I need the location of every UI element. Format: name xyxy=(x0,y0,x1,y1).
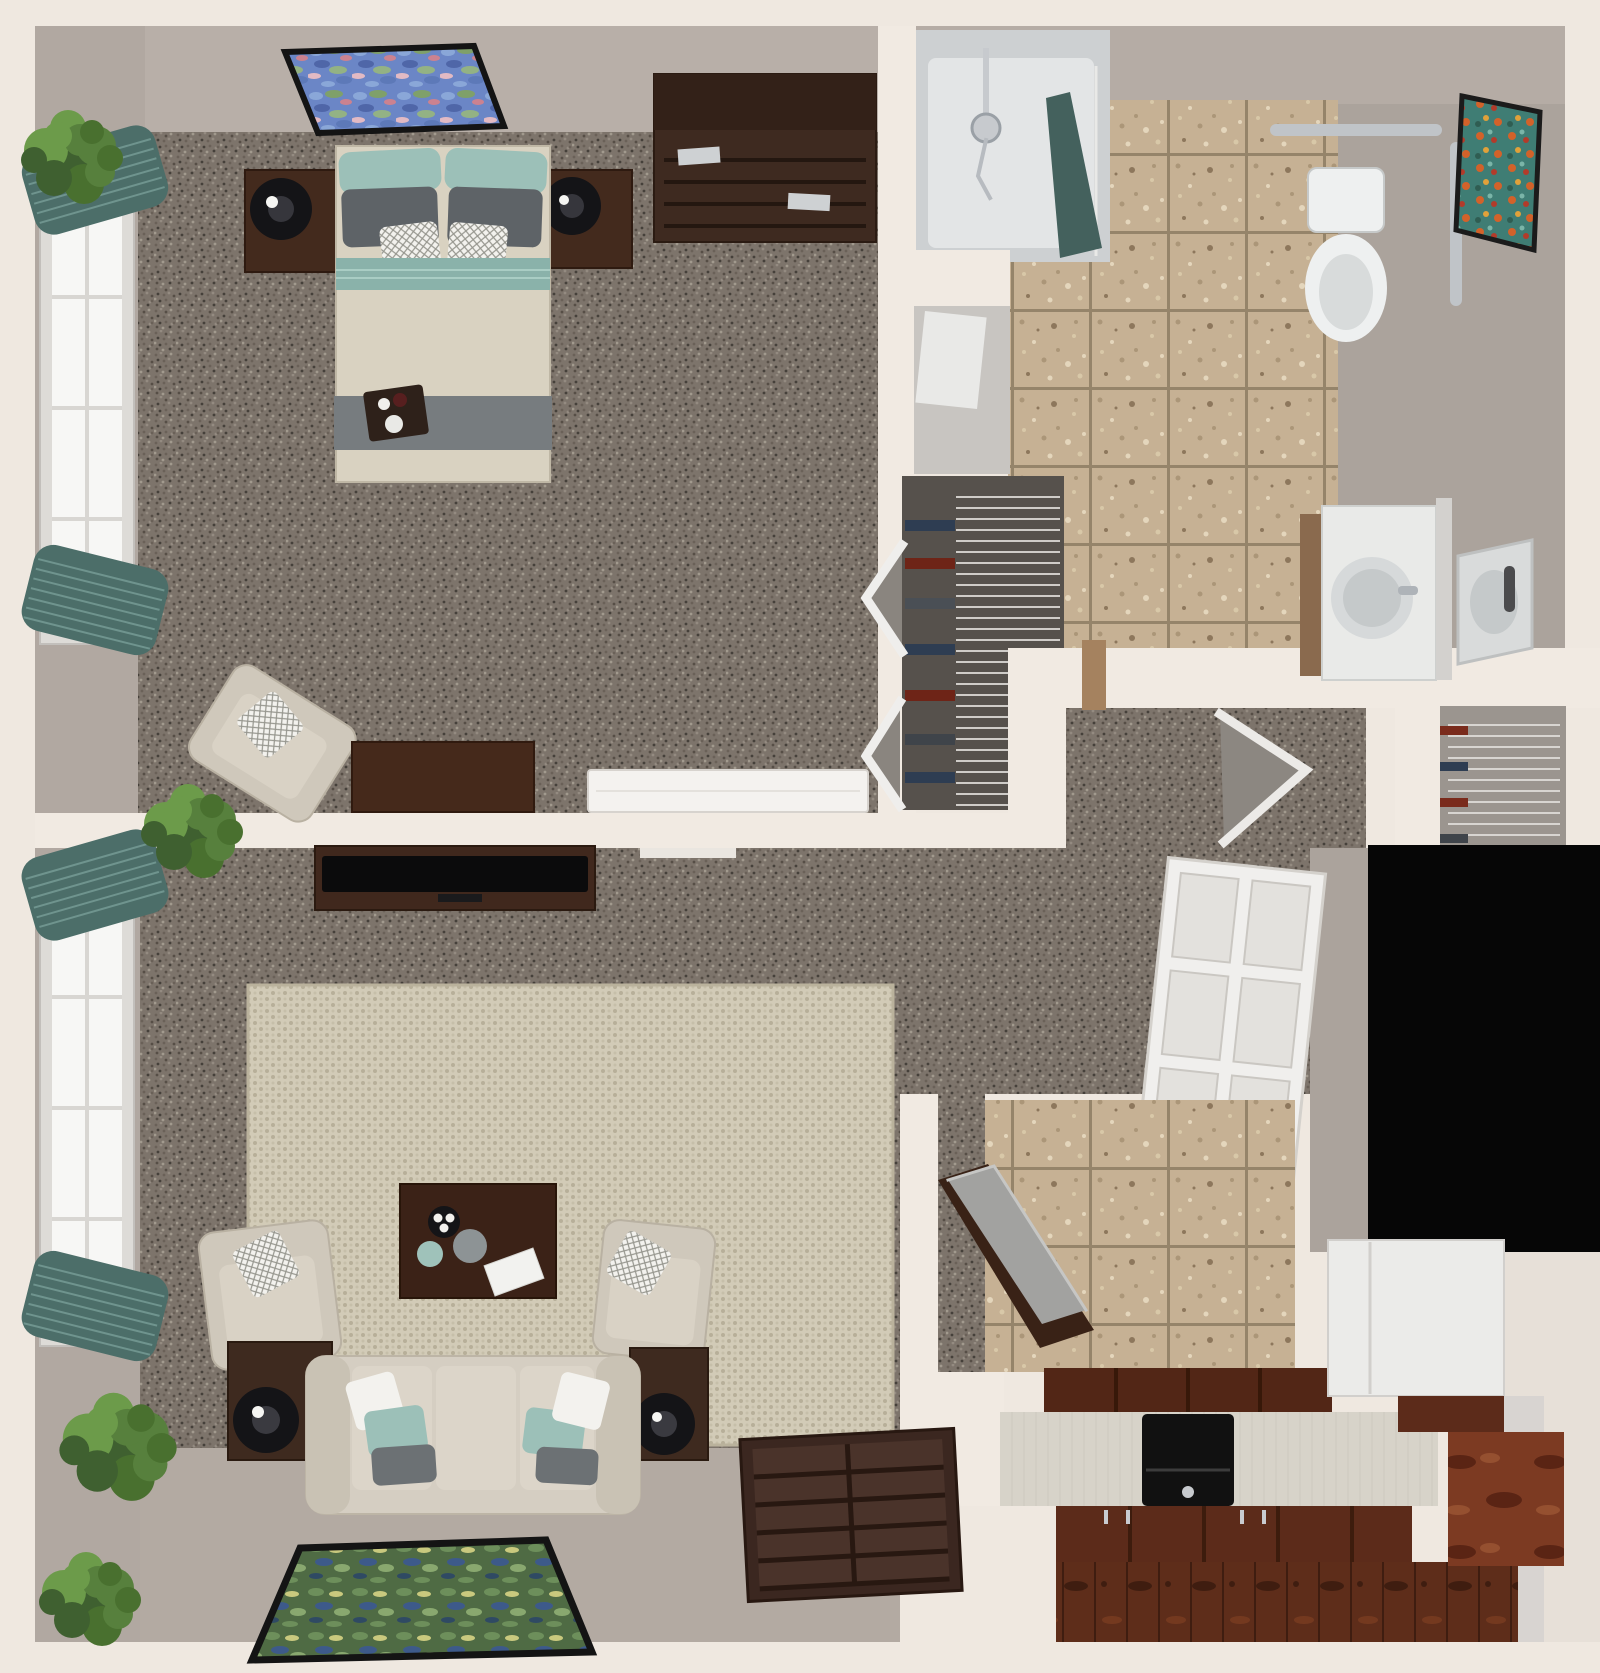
cabinet-handle xyxy=(1104,1510,1108,1524)
closet-clothes-item xyxy=(905,734,955,745)
tv-screen xyxy=(322,856,588,892)
table-lamp-left-glow xyxy=(266,196,278,208)
sink-faucet xyxy=(1182,1486,1194,1498)
dresser-item xyxy=(677,147,720,166)
vanity-faucet xyxy=(1398,586,1418,595)
closet-divider-wall xyxy=(1395,700,1440,850)
tray-cup xyxy=(378,398,390,410)
dresser-item xyxy=(788,193,831,211)
laundry-appliance xyxy=(915,311,986,409)
tray-bowl xyxy=(385,415,403,433)
kitchen-wood-floor xyxy=(1056,1562,1518,1642)
closet-clothes-item xyxy=(905,598,955,609)
toilet-tank xyxy=(1308,168,1384,232)
table-lamp-right-glow xyxy=(559,195,569,205)
floor-plan-rendering xyxy=(0,0,1600,1673)
hall-west-wall xyxy=(1008,700,1066,848)
kitchen-lower-cabinets xyxy=(1056,1506,1412,1562)
sofa-cushion xyxy=(436,1366,516,1490)
cherry-counter-slab xyxy=(1448,1432,1564,1566)
closet-clothes-item xyxy=(905,644,955,655)
floor-rug-monet xyxy=(252,1540,592,1660)
bowl-egg xyxy=(440,1224,449,1233)
cabinet-handle xyxy=(1126,1510,1130,1524)
bathroom-door-edge xyxy=(1082,640,1106,710)
closet-clothes-item xyxy=(905,772,955,783)
refrigerator xyxy=(1328,1240,1504,1396)
bathroom-flower-art xyxy=(1456,96,1540,250)
sofa-arm-right xyxy=(596,1356,640,1514)
toilet-seat xyxy=(1319,254,1373,330)
bedroom-wall-art-monet xyxy=(285,46,504,133)
sofa-pillow-gray-left xyxy=(371,1444,437,1486)
vanity-side-panel xyxy=(1436,498,1452,680)
bowl-egg xyxy=(446,1214,455,1223)
coffee-table-vase-gray xyxy=(453,1229,487,1263)
hall-carpet xyxy=(1066,708,1366,848)
sofa-arm-left xyxy=(306,1356,350,1514)
cabinet-handle xyxy=(1240,1510,1244,1524)
coffee-table-vase-teal xyxy=(417,1241,443,1267)
floor-lamp-right-glow xyxy=(652,1412,662,1422)
front-door-panel xyxy=(1172,873,1238,963)
hall-closet-clothes-item xyxy=(1440,834,1468,843)
mirror-towel-ring xyxy=(1504,566,1515,612)
tray-bottle xyxy=(393,393,407,407)
coffee-table-bowl xyxy=(428,1206,460,1238)
door-threshold xyxy=(640,848,736,858)
bed-runner-teal xyxy=(336,258,550,290)
floor-lamp-left-glow xyxy=(252,1406,264,1418)
hall-closet-clothes-item xyxy=(1440,726,1468,735)
tv-stand xyxy=(438,894,482,902)
right-counter-band xyxy=(1398,1396,1504,1432)
cabinet-handle xyxy=(1262,1510,1266,1524)
bed-breakfast-tray xyxy=(363,384,429,442)
bowl-egg xyxy=(434,1214,443,1223)
sofa-pillow-gray-right xyxy=(535,1446,599,1485)
dresser-top xyxy=(654,74,876,130)
laundry-nook-wall xyxy=(878,250,1010,306)
unrendered-void xyxy=(1368,845,1600,1252)
vanity-sink-basin xyxy=(1343,569,1401,627)
vanity-door xyxy=(1300,514,1322,676)
shower-head xyxy=(972,114,1000,142)
towel-bar-horizontal xyxy=(1270,124,1442,136)
front-door-panel xyxy=(1233,978,1299,1068)
apartment-3d-floor-plan xyxy=(0,0,1600,1673)
bedroom-desk xyxy=(352,742,534,812)
closet-clothes-item xyxy=(905,558,955,569)
front-door-panel xyxy=(1244,880,1310,970)
closet-clothes-item xyxy=(905,690,955,701)
front-door-panel xyxy=(1162,970,1228,1060)
closet-clothes-item xyxy=(905,520,955,531)
kitchen-west-wall xyxy=(900,1094,938,1448)
hall-closet-clothes-item xyxy=(1440,762,1468,771)
hall-closet-clothes-item xyxy=(1440,798,1468,807)
